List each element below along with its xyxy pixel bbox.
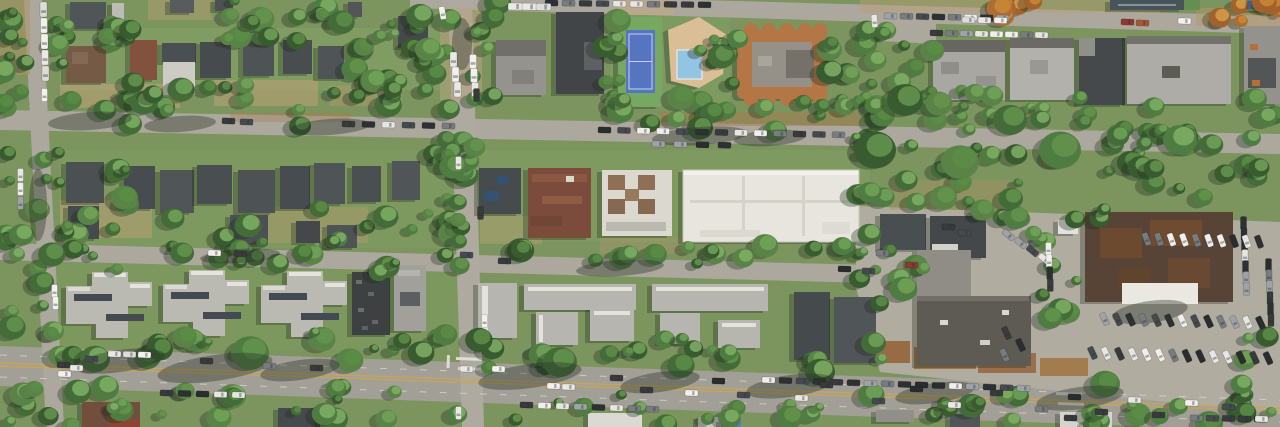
aerial-imagery [0, 0, 1280, 427]
warm-overlay [0, 0, 1280, 427]
satellite-view [0, 0, 1280, 427]
